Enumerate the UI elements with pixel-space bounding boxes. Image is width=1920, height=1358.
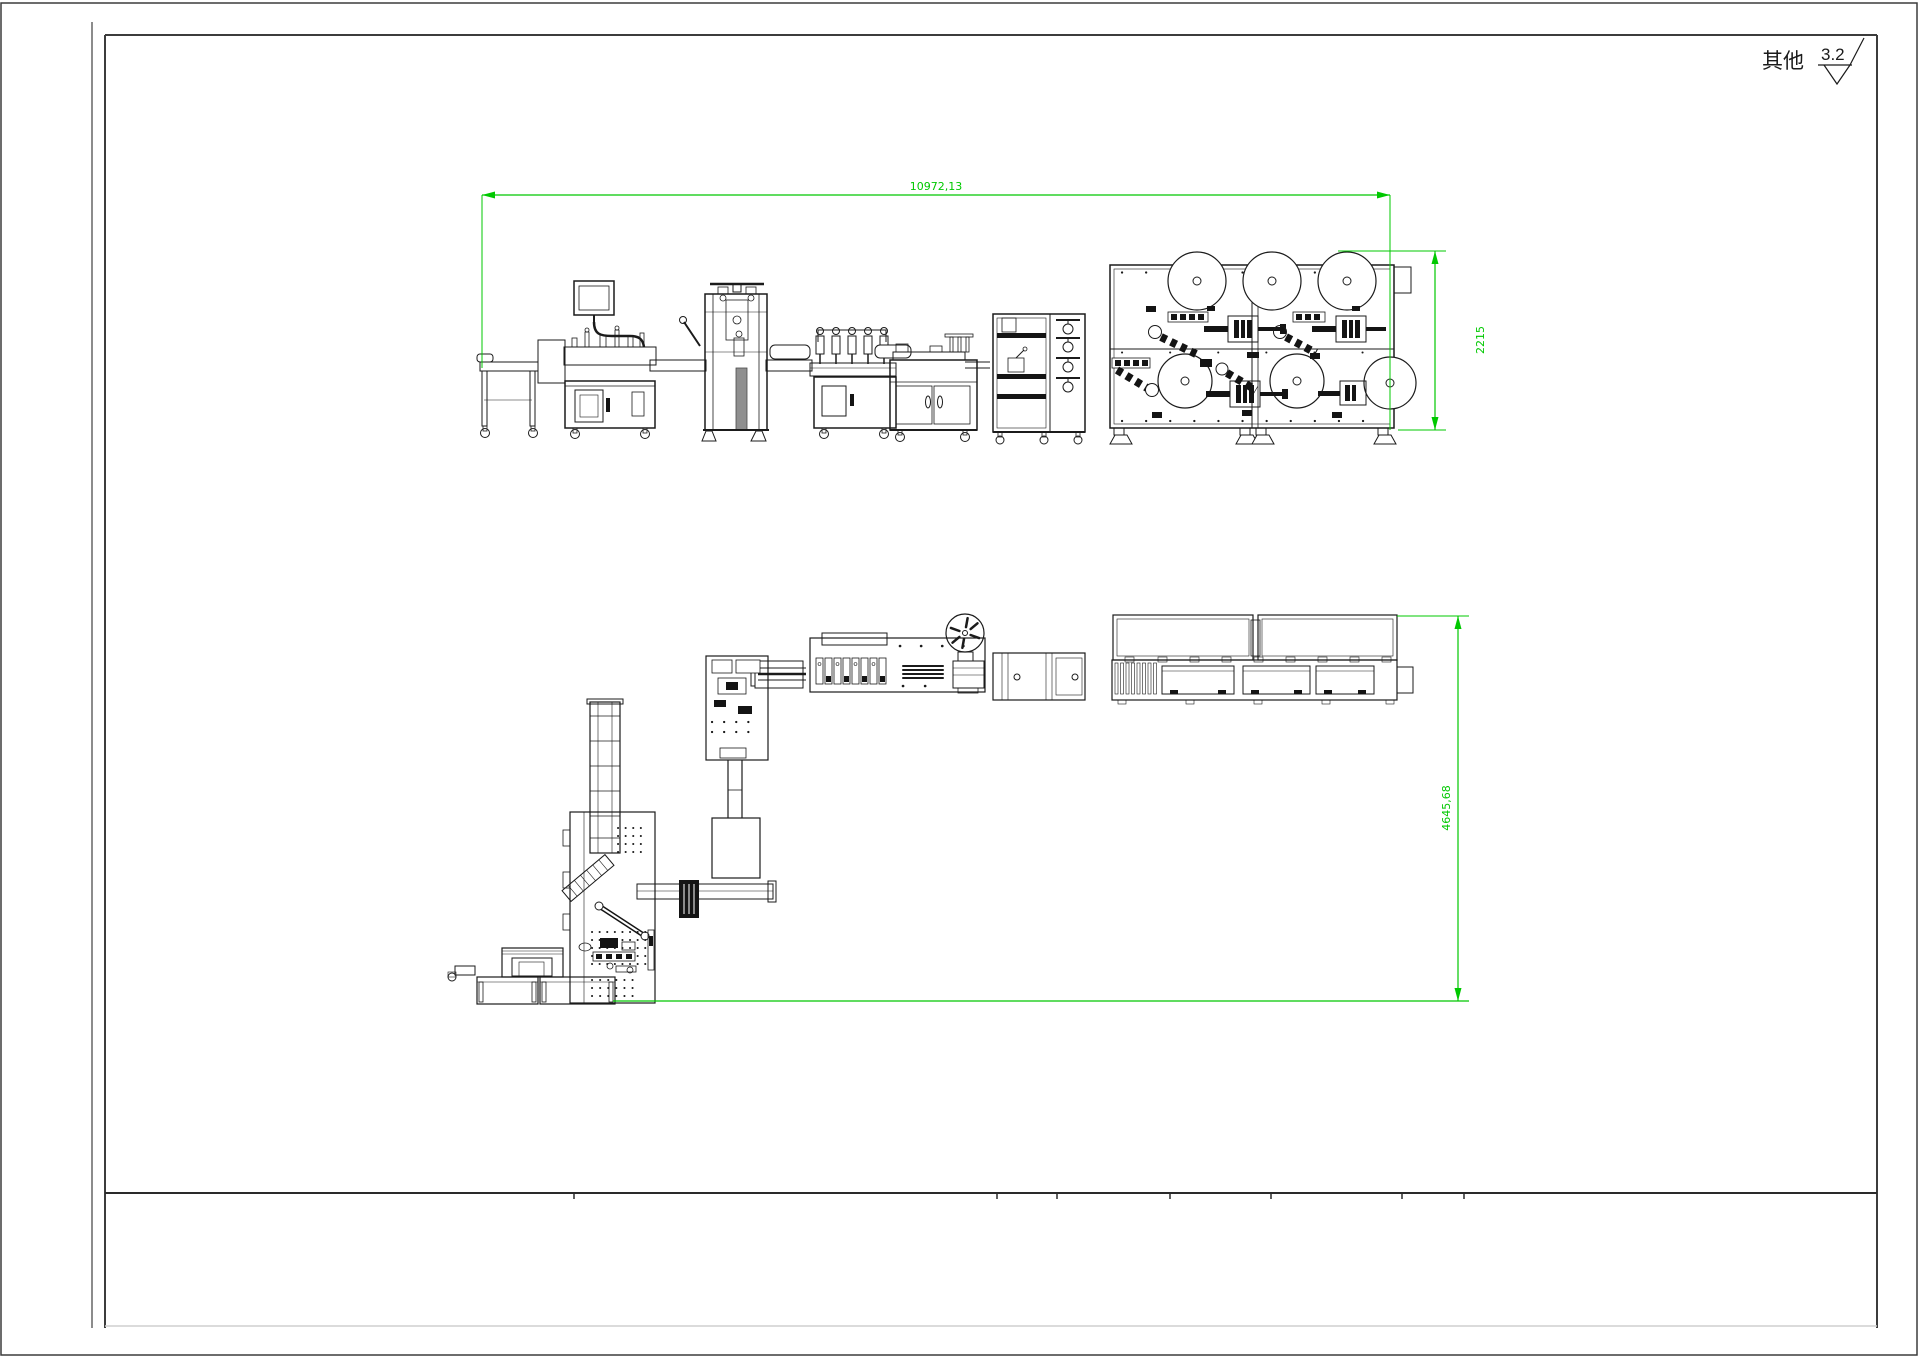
winding-head — [1318, 381, 1366, 405]
machine-cabinet — [875, 334, 990, 442]
drawing-sheet: 其他 3.2 — [0, 0, 1920, 1358]
surface-roughness-note: 其他 3.2 — [1762, 38, 1864, 84]
machine-rack — [993, 314, 1085, 444]
machine-reel-unit — [1110, 252, 1416, 444]
plan-view — [448, 614, 1413, 1004]
conveyor-bridge-2 — [766, 345, 812, 371]
dim-plan-height-text: 4645,68 — [1440, 785, 1453, 831]
drawing-canvas: 其他 3.2 — [0, 0, 1920, 1358]
plan-reel-unit — [1112, 615, 1413, 704]
machine-multihead — [810, 328, 896, 439]
plan-conveyor-line — [751, 614, 1085, 700]
plan-elbow-station — [706, 656, 768, 878]
surface-note-value: 3.2 — [1821, 45, 1845, 64]
machine-labeler — [538, 281, 656, 439]
conveyor-bridge-1 — [650, 360, 706, 371]
dim-front-width-text: 10972,13 — [910, 180, 963, 193]
front-view — [477, 252, 1416, 444]
machine-feet — [1110, 428, 1396, 444]
plan-outfeed-tables — [448, 948, 615, 1004]
surface-note-label: 其他 — [1762, 50, 1804, 73]
machine-gantry — [680, 284, 770, 441]
machine-infeed-table — [477, 354, 538, 438]
dim-front-height-text: 2215 — [1474, 326, 1487, 354]
title-block-divider — [105, 1193, 1877, 1199]
sheet-border — [1, 3, 1917, 1355]
